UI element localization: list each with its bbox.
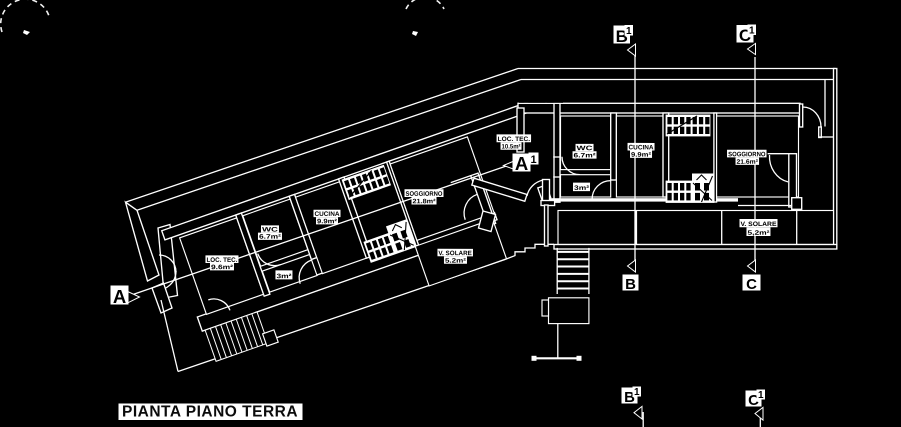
svg-text:6.7m²: 6.7m² [259,234,281,241]
svg-text:B: B [625,276,636,293]
svg-text:1: 1 [749,26,755,37]
svg-text:1: 1 [634,387,640,398]
svg-text:LOC. TEC.: LOC. TEC. [206,257,237,264]
svg-text:WC: WC [577,145,594,152]
svg-text:21.8m²: 21.8m² [413,198,436,205]
svg-text:LOC. TEC.: LOC. TEC. [498,136,531,143]
svg-text:V. SOLARE: V. SOLARE [438,250,472,257]
svg-text:1: 1 [626,26,632,37]
svg-text:9.9m²: 9.9m² [631,152,651,159]
svg-text:CUCINA: CUCINA [314,211,339,218]
svg-text:PIANTA PIANO TERRA: PIANTA PIANO TERRA [122,404,298,421]
svg-text:C: C [746,276,757,293]
svg-text:5,2m²: 5,2m² [747,230,769,237]
svg-text:V. SOLARE: V. SOLARE [740,221,777,228]
svg-text:3m²: 3m² [574,185,589,192]
svg-text:6.7m²: 6.7m² [574,152,596,159]
svg-text:5.2m²: 5.2m² [445,258,466,265]
svg-text:A: A [113,286,126,307]
svg-text:1: 1 [758,390,764,401]
svg-text:CUCINA: CUCINA [629,144,654,151]
svg-text:WC: WC [262,226,279,233]
svg-text:A: A [515,153,528,174]
svg-text:9.6m²: 9.6m² [211,264,233,271]
svg-text:3m²: 3m² [276,273,291,280]
svg-text:9.9m²: 9.9m² [317,218,337,225]
svg-text:21.6m²: 21.6m² [736,159,758,166]
svg-text:10.5m²: 10.5m² [502,144,521,151]
svg-text:1: 1 [530,154,536,166]
svg-text:SOGGIORNO: SOGGIORNO [406,191,443,198]
svg-text:SOGGIORNO: SOGGIORNO [728,151,766,158]
